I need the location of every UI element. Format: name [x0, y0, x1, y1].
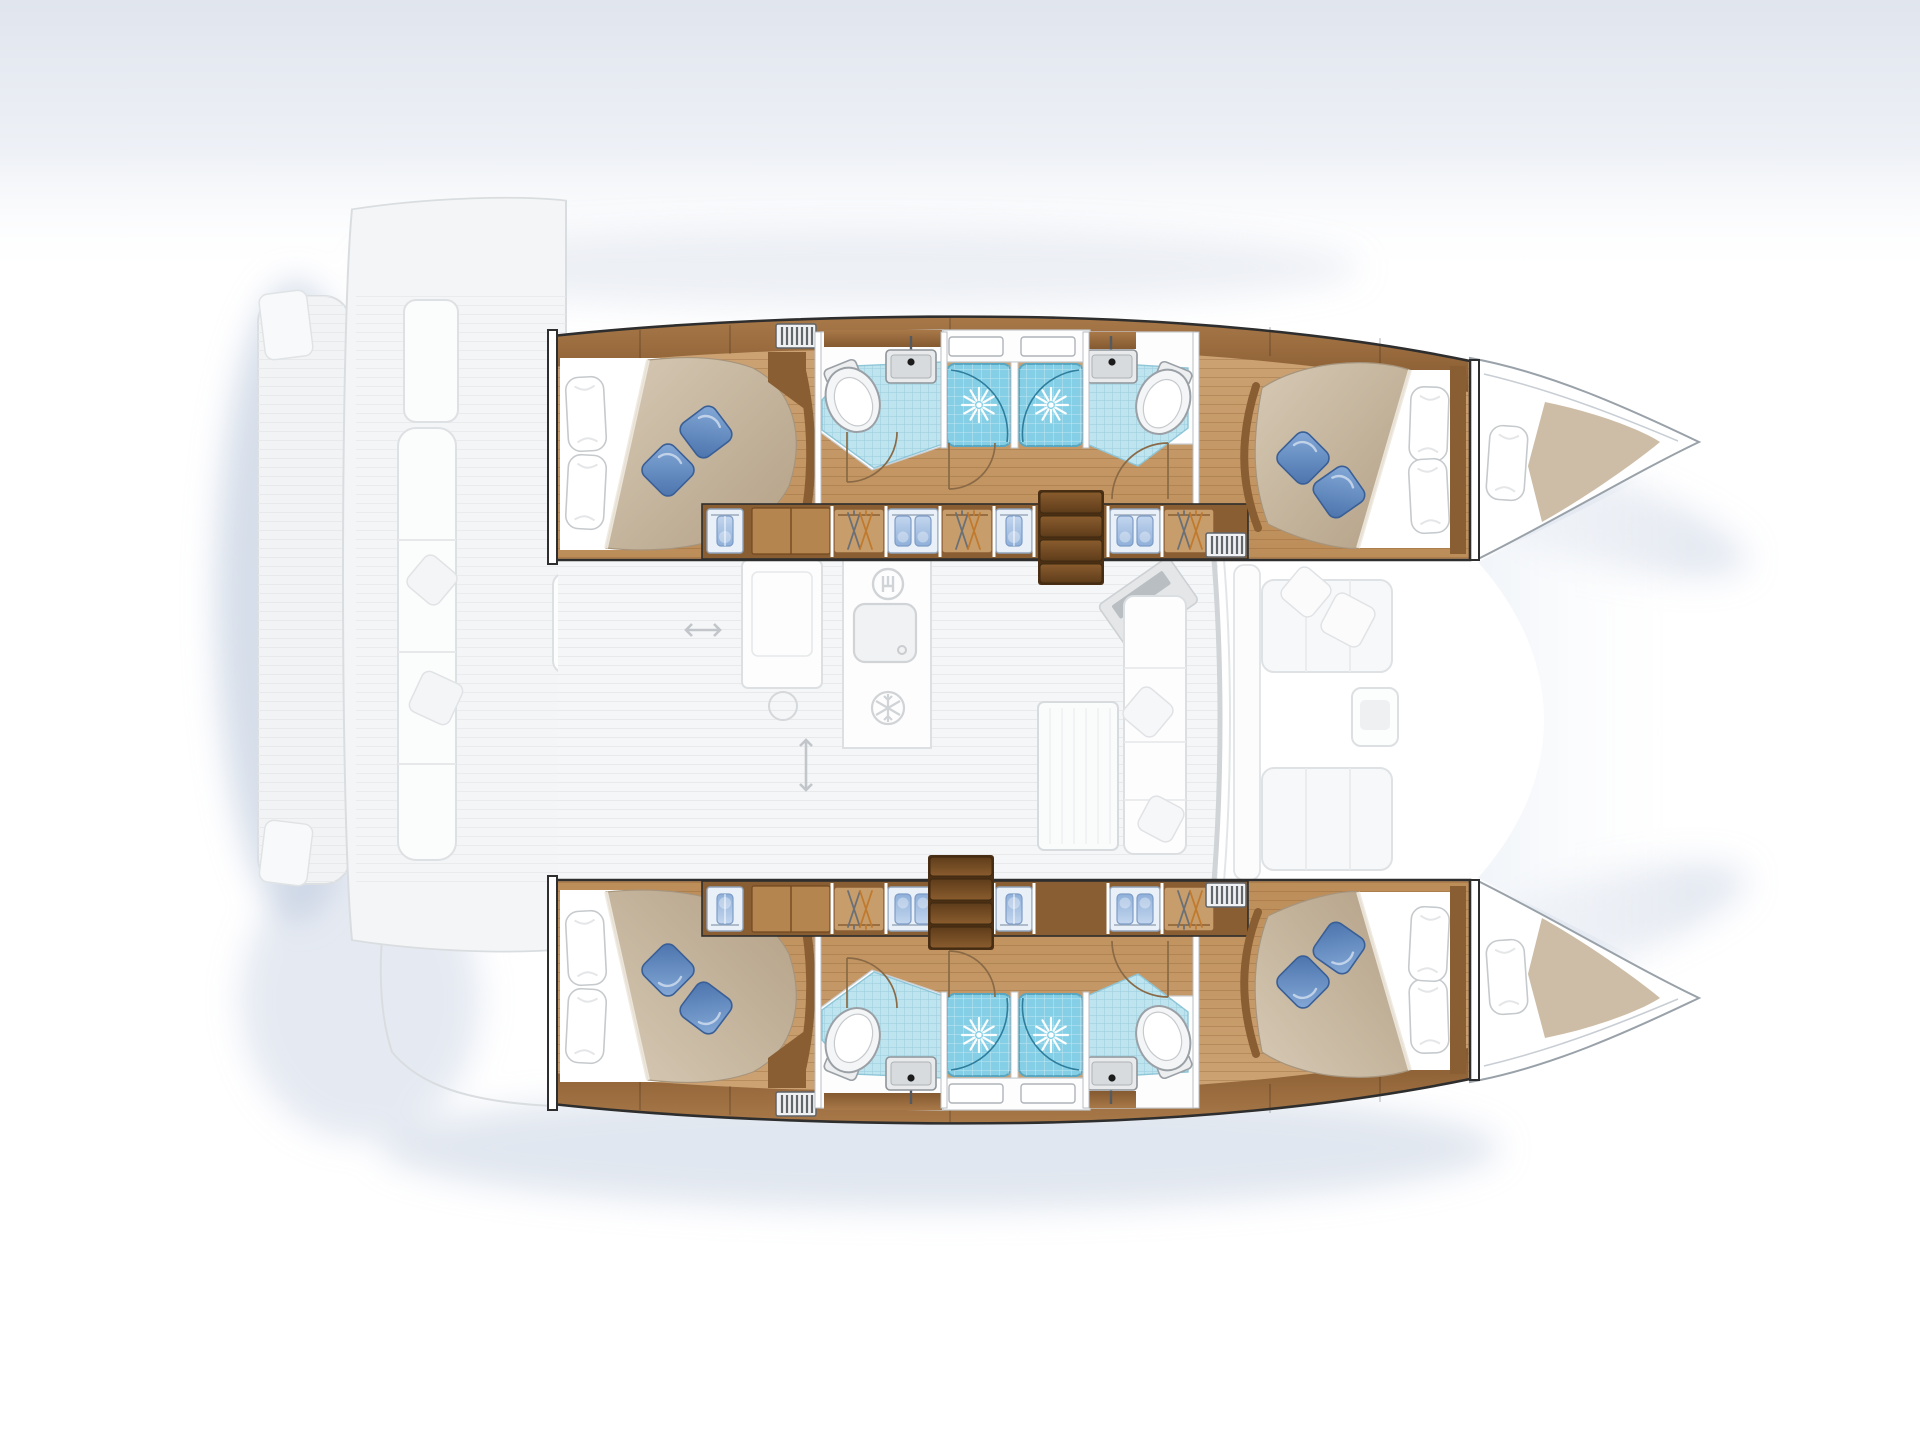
cockpit-bench	[398, 428, 456, 860]
saloon	[558, 556, 1230, 882]
stern-platform	[258, 289, 350, 886]
companionway-stairs-port	[1038, 490, 1104, 585]
galley-sink-icon	[854, 604, 916, 662]
galley-counter	[742, 560, 822, 688]
companionway-stairs-starboard	[928, 855, 994, 950]
catamaran-floor-plan	[0, 0, 1920, 1440]
floor-plan-page	[0, 0, 1920, 1440]
